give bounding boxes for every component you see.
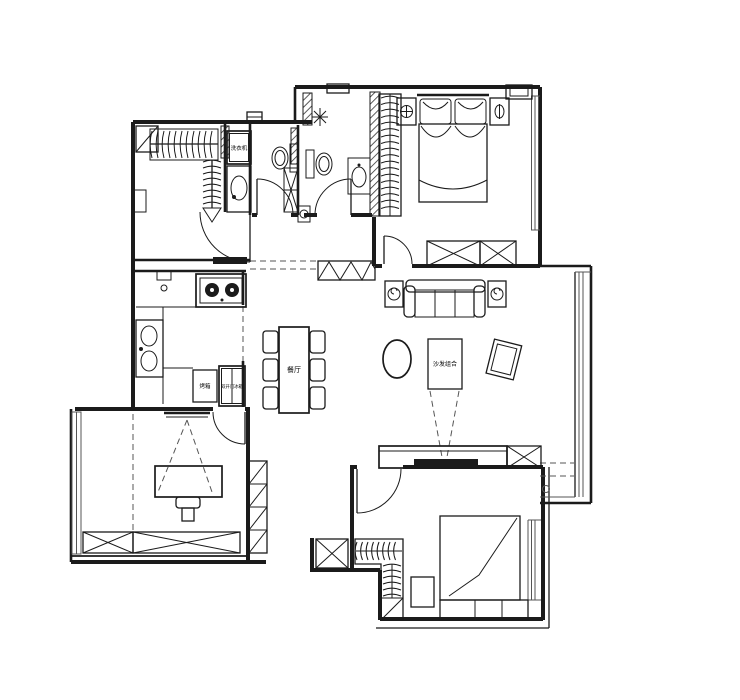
laundry-nook: 洗衣机 (227, 131, 251, 212)
double-door-fridge: 双开门冰箱 (219, 366, 245, 406)
plant-icon (312, 108, 328, 126)
chair (263, 387, 278, 409)
single-bed (440, 516, 528, 620)
nightstand-left (397, 98, 416, 125)
sofa (404, 280, 485, 317)
chair-base (182, 508, 194, 521)
bathroom-2 (306, 108, 370, 215)
chair (310, 331, 325, 353)
projection-dashes (158, 420, 212, 492)
study (83, 412, 267, 553)
wall-bed2-outer-face (376, 467, 549, 628)
wall-niche (134, 190, 146, 212)
door-stop-block (157, 271, 171, 280)
bath1-door (257, 179, 293, 215)
hallway (318, 261, 375, 280)
master-door (384, 236, 412, 264)
pillow-right (455, 99, 486, 124)
blanket-fold (449, 518, 517, 596)
corner-cabinet-x (507, 446, 541, 468)
tilted-frame (486, 339, 522, 380)
hallway-beam-dashes (250, 261, 317, 269)
bay-bottom-dashes (540, 463, 574, 476)
storage-cabinet-x (427, 241, 516, 266)
bathroom-1 (257, 144, 310, 222)
view-cone-dashes (430, 391, 459, 457)
master-window (531, 96, 540, 230)
gas-stove-icon (196, 274, 246, 307)
bed-body (419, 124, 487, 202)
chair (176, 497, 200, 508)
chair (310, 359, 325, 381)
chair (263, 359, 278, 381)
fridge-label: 双开门冰箱 (221, 383, 243, 390)
side-table-left (385, 281, 403, 307)
rod-end-triangle (203, 208, 221, 222)
sofa-arm-left (404, 286, 415, 317)
nightstand-right (490, 98, 509, 125)
dining-room: 餐厅 (263, 327, 325, 413)
tv-console (379, 446, 507, 468)
desk (155, 466, 222, 497)
toilet-icon (306, 150, 332, 178)
master-bedroom (379, 94, 516, 266)
nightstand (411, 577, 434, 607)
side-table-right (488, 281, 506, 307)
bedroom-2 (316, 469, 528, 620)
shoe-cabinet-zigzag (318, 262, 375, 280)
duct-box-2-inner (510, 88, 528, 96)
basin-drain (232, 195, 236, 199)
closet-door (200, 212, 250, 262)
washing-machine-label: 洗衣机 (231, 144, 248, 152)
oven-label: 烤箱 (199, 382, 211, 390)
chair (310, 387, 325, 409)
chair (263, 331, 278, 353)
study-balcony-window (72, 412, 81, 554)
bed-body (440, 516, 520, 600)
storage-cabinets-x (83, 532, 240, 553)
kitchen: 烤箱 双开门冰箱 (136, 271, 246, 406)
sofa-area-label: 沙发组合 (433, 360, 457, 368)
sofa-seat (415, 290, 474, 317)
study-door (213, 412, 245, 444)
door-stop-circle (161, 285, 167, 291)
double-bed (417, 95, 489, 202)
floorplan-canvas: 洗衣机 (0, 0, 740, 700)
sofa-arm-right (474, 286, 485, 317)
walk-in-closet (134, 126, 221, 222)
dining-label: 餐厅 (287, 365, 301, 374)
double-sink-icon (136, 320, 163, 377)
living-room: 沙发组合 (379, 280, 541, 468)
bedroom2-door (357, 469, 401, 513)
oval-coffee-table (383, 340, 411, 378)
bedroom2-window (528, 520, 541, 600)
pillow-left (420, 99, 451, 124)
hatched-walls (221, 92, 380, 216)
floor-plan: 洗衣机 (0, 0, 740, 700)
shelf-column (249, 461, 267, 553)
bath2-door (315, 179, 351, 215)
storage-box-x (316, 539, 348, 568)
tv-icon (414, 459, 478, 465)
